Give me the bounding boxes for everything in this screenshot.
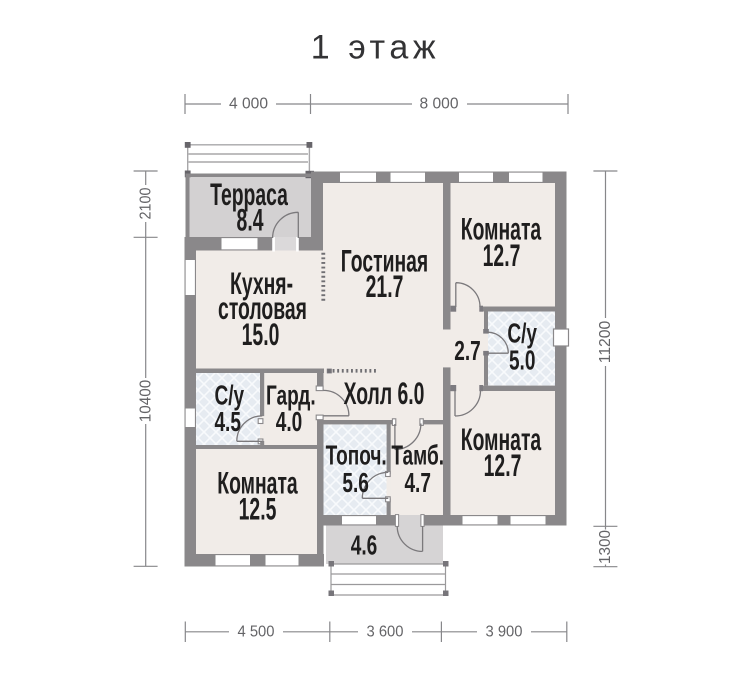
svg-text:Холл 6.0: Холл 6.0 bbox=[344, 375, 425, 411]
svg-text:2.7: 2.7 bbox=[454, 335, 480, 367]
svg-text:1 этаж: 1 этаж bbox=[311, 28, 440, 66]
svg-text:4.6: 4.6 bbox=[351, 530, 377, 562]
svg-text:5.0: 5.0 bbox=[509, 345, 535, 377]
svg-text:3 600: 3 600 bbox=[367, 623, 404, 640]
svg-text:4 000: 4 000 bbox=[229, 96, 268, 113]
svg-text:Топоч.: Топоч. bbox=[326, 440, 387, 472]
svg-text:15.0: 15.0 bbox=[242, 316, 280, 352]
svg-text:3 900: 3 900 bbox=[486, 623, 523, 640]
svg-text:4.0: 4.0 bbox=[276, 406, 302, 438]
svg-text:5.6: 5.6 bbox=[342, 468, 368, 500]
svg-text:10400: 10400 bbox=[137, 380, 154, 423]
svg-text:Тамб.: Тамб. bbox=[391, 440, 444, 472]
svg-text:21.7: 21.7 bbox=[366, 268, 404, 304]
svg-text:1300: 1300 bbox=[597, 530, 614, 564]
svg-text:4.7: 4.7 bbox=[404, 468, 430, 500]
svg-text:12.7: 12.7 bbox=[484, 447, 522, 483]
svg-text:12.5: 12.5 bbox=[239, 491, 277, 527]
svg-text:12.7: 12.7 bbox=[483, 237, 521, 273]
svg-text:2100: 2100 bbox=[137, 187, 154, 219]
svg-text:8 000: 8 000 bbox=[420, 96, 459, 113]
svg-text:8.4: 8.4 bbox=[237, 202, 264, 238]
svg-text:11200: 11200 bbox=[597, 321, 614, 364]
svg-text:4.5: 4.5 bbox=[214, 406, 240, 438]
svg-text:4 500: 4 500 bbox=[238, 623, 275, 640]
